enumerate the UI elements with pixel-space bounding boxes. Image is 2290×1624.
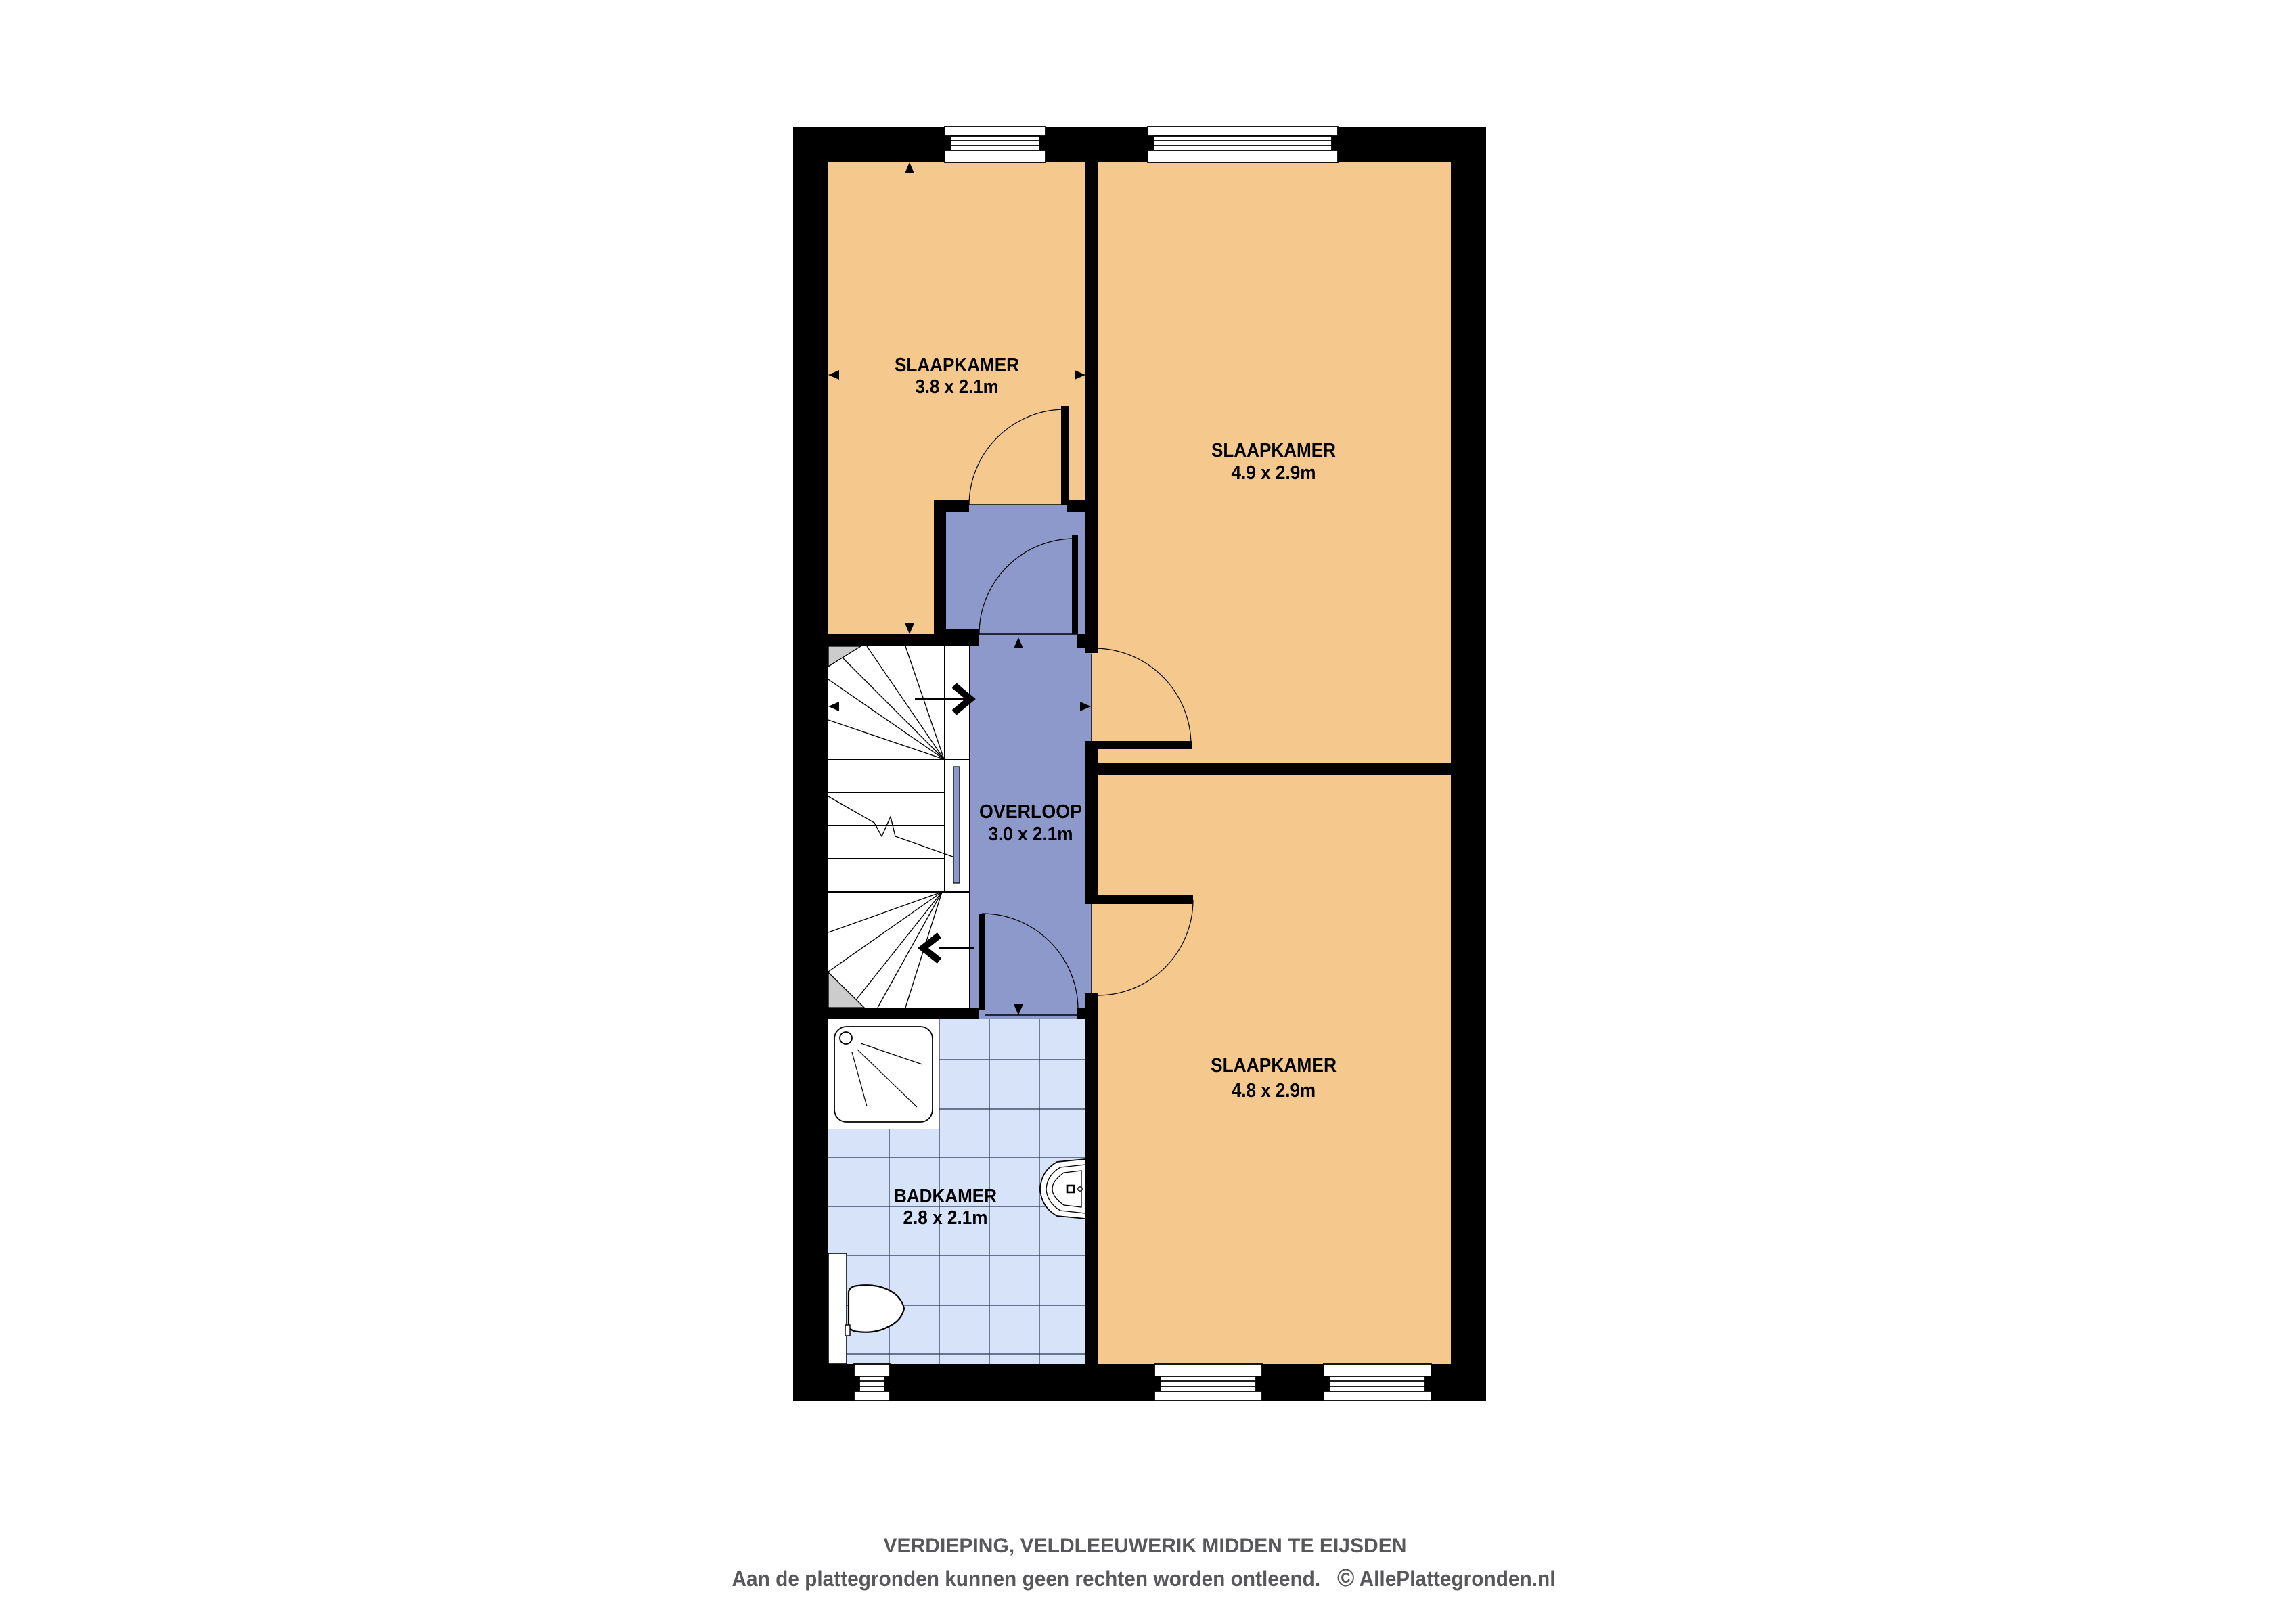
- svg-text:SLAAPKAMER: SLAAPKAMER: [1211, 1055, 1337, 1077]
- svg-text:Aan de plattegronden kunnen ge: Aan de plattegronden kunnen geen rechten…: [732, 1564, 1556, 1592]
- svg-text:4.9 x 2.9m: 4.9 x 2.9m: [1232, 462, 1316, 484]
- svg-text:2.8 x 2.1m: 2.8 x 2.1m: [903, 1207, 988, 1229]
- svg-text:4.8 x 2.9m: 4.8 x 2.9m: [1232, 1080, 1316, 1102]
- svg-text:OVERLOOP: OVERLOOP: [979, 801, 1082, 823]
- svg-text:3.0 x 2.1m: 3.0 x 2.1m: [989, 824, 1073, 845]
- svg-text:3.8 x 2.1m: 3.8 x 2.1m: [916, 376, 999, 398]
- svg-text:VERDIEPING, VELDLEEUWERIK MIDD: VERDIEPING, VELDLEEUWERIK MIDDEN TE EIJS…: [884, 1535, 1407, 1557]
- svg-text:SLAAPKAMER: SLAAPKAMER: [1211, 440, 1336, 461]
- svg-text:BADKAMER: BADKAMER: [894, 1186, 997, 1207]
- svg-text:SLAAPKAMER: SLAAPKAMER: [895, 355, 1019, 376]
